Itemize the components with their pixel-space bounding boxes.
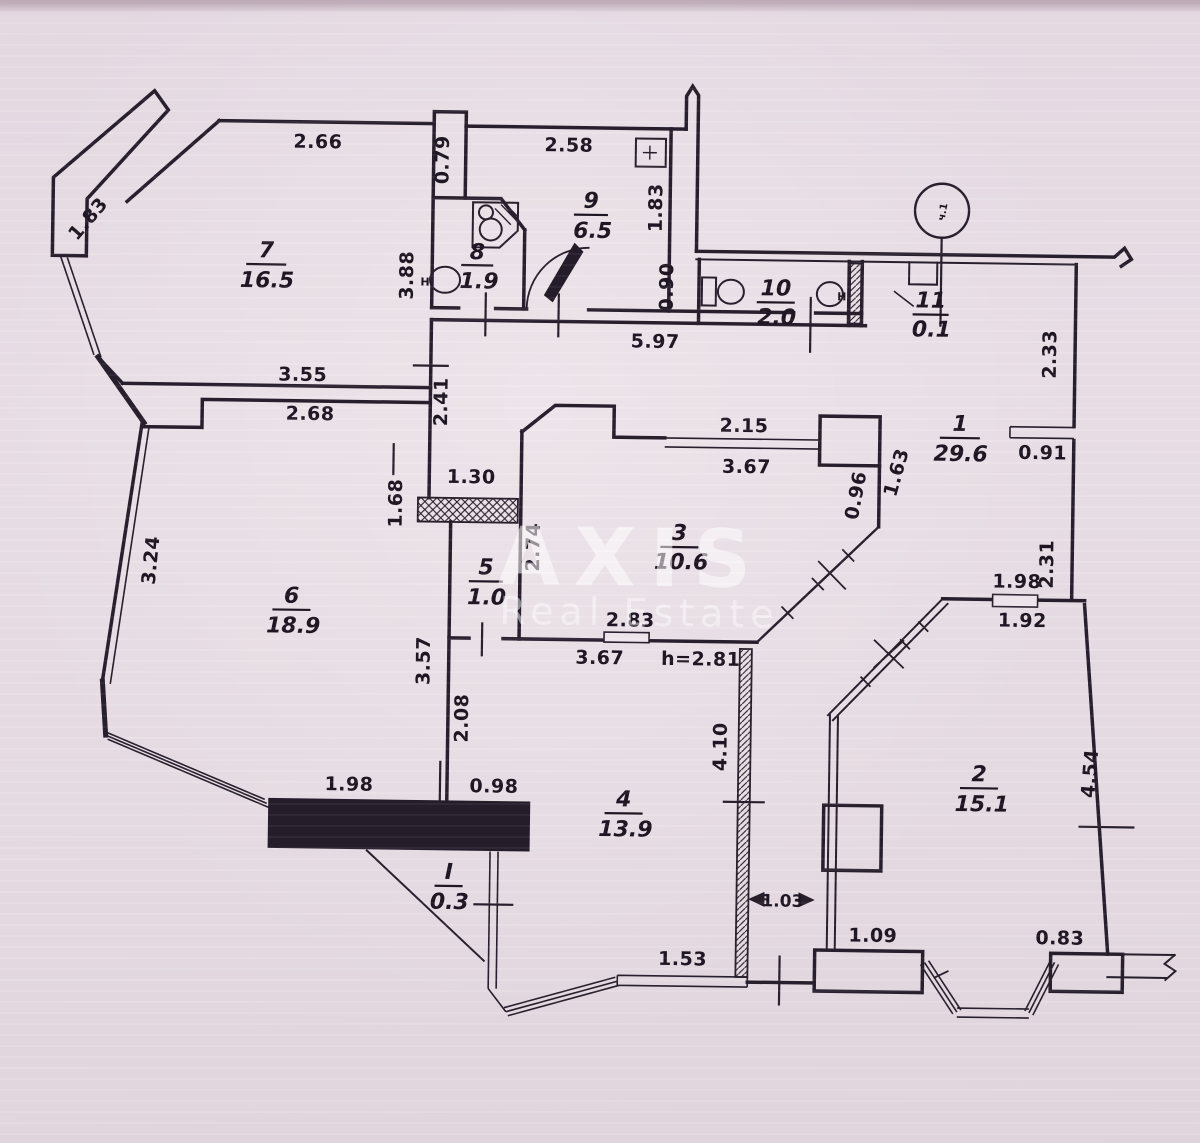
dim-1-53: 1.53: [658, 948, 707, 971]
svg-text:15.1: 15.1: [954, 792, 1009, 818]
dim-1-30: 1.30: [447, 466, 496, 489]
dim-1-09: 1.09: [848, 925, 897, 948]
dim-1-98-bottomleft: 1.98: [324, 773, 373, 796]
room-4-label: 4 13.9: [598, 787, 653, 843]
dim-3-24: 3.24: [138, 535, 165, 586]
dim-2-58: 2.58: [544, 134, 593, 157]
svg-text:1: 1: [952, 412, 968, 437]
svg-text:18.9: 18.9: [266, 613, 321, 639]
balcony-leader: [894, 291, 914, 306]
solid-wall-block: [268, 798, 530, 851]
watermark-line2: Real Estate: [499, 589, 780, 637]
svg-text:6.5: 6.5: [573, 219, 612, 245]
riser-circle-mark: ч.1: [936, 202, 950, 221]
dim-2-33: 2.33: [1039, 330, 1062, 379]
svg-text:29.6: 29.6: [933, 442, 988, 468]
dim-1-63: 1.63: [879, 446, 913, 499]
dim-2-66: 2.66: [293, 131, 342, 154]
svg-text:5: 5: [478, 555, 494, 580]
dim-1-83-room9: 1.83: [645, 183, 668, 232]
svg-text:6: 6: [284, 584, 300, 609]
svg-text:0.1: 0.1: [912, 317, 951, 343]
dim-4-54: 4.54: [1077, 748, 1103, 799]
watermark: AXIS Real Estate: [497, 510, 781, 637]
svg-text:11: 11: [915, 288, 946, 313]
svg-text:16.5: 16.5: [240, 268, 295, 294]
svg-text:13.9: 13.9: [598, 817, 653, 843]
svg-text:2.0: 2.0: [757, 305, 796, 331]
svg-text:7: 7: [259, 238, 275, 263]
dim-2-68: 2.68: [286, 403, 335, 426]
room-9-label: 9 6.5: [573, 189, 613, 245]
dim-2-15: 2.15: [719, 415, 768, 438]
dim-0-98: 0.98: [469, 775, 518, 798]
dim-0-83: 0.83: [1035, 927, 1084, 950]
dim-1-98-room2: 1.98: [992, 570, 1041, 593]
svg-text:10: 10: [760, 276, 791, 301]
room-1-label: 1 29.6: [933, 412, 988, 468]
sink-icon-label-2: H: [837, 290, 846, 303]
sink-icon-label: H: [420, 275, 429, 288]
dim-3-55: 3.55: [278, 363, 327, 386]
dim-0-91: 0.91: [1018, 442, 1067, 465]
room-10-label: 10 2.0: [756, 276, 796, 331]
room-7-label: 7 16.5: [240, 238, 295, 294]
dim-2-08: 2.08: [451, 693, 474, 742]
svg-text:2: 2: [971, 762, 987, 787]
room-11-label: 11 0.1: [912, 288, 952, 343]
room-2-label: 2 15.1: [954, 762, 1009, 818]
dim-4-10: 4.10: [709, 722, 732, 771]
dim-0-90: 0.90: [656, 262, 679, 311]
floor-plan-drawing: H H ч.1 2.66 0.79 2.58 1.83 0.90 1.83 3.…: [0, 0, 1200, 1143]
dim-3-88: 3.88: [396, 251, 419, 300]
dim-1-03: 1.03: [761, 891, 803, 912]
svg-text:I: I: [444, 860, 453, 885]
svg-text:1.9: 1.9: [459, 269, 498, 295]
floor-plan-photo: H H ч.1 2.66 0.79 2.58 1.83 0.90 1.83 3.…: [0, 0, 1200, 1143]
dim-0-79: 0.79: [431, 135, 454, 184]
dim-2-41: 2.41: [430, 377, 453, 426]
svg-text:4: 4: [615, 787, 632, 812]
dim-3-67-bottom: 3.67: [575, 647, 624, 670]
dim-0-96: 0.96: [841, 469, 872, 521]
dim-1-92: 1.92: [998, 610, 1047, 633]
dim-height-2-81: h=2.81: [661, 648, 741, 671]
room-6-label: 6 18.9: [266, 583, 321, 639]
room-I-label: I 0.3: [430, 860, 470, 916]
dim-3-57: 3.57: [412, 636, 435, 685]
svg-text:9: 9: [583, 189, 599, 214]
svg-text:8: 8: [470, 240, 486, 265]
dim-3-67-top: 3.67: [722, 456, 771, 479]
dim-1-68: 1.68: [385, 479, 408, 528]
svg-text:0.3: 0.3: [430, 890, 469, 916]
dim-5-97: 5.97: [631, 330, 680, 353]
